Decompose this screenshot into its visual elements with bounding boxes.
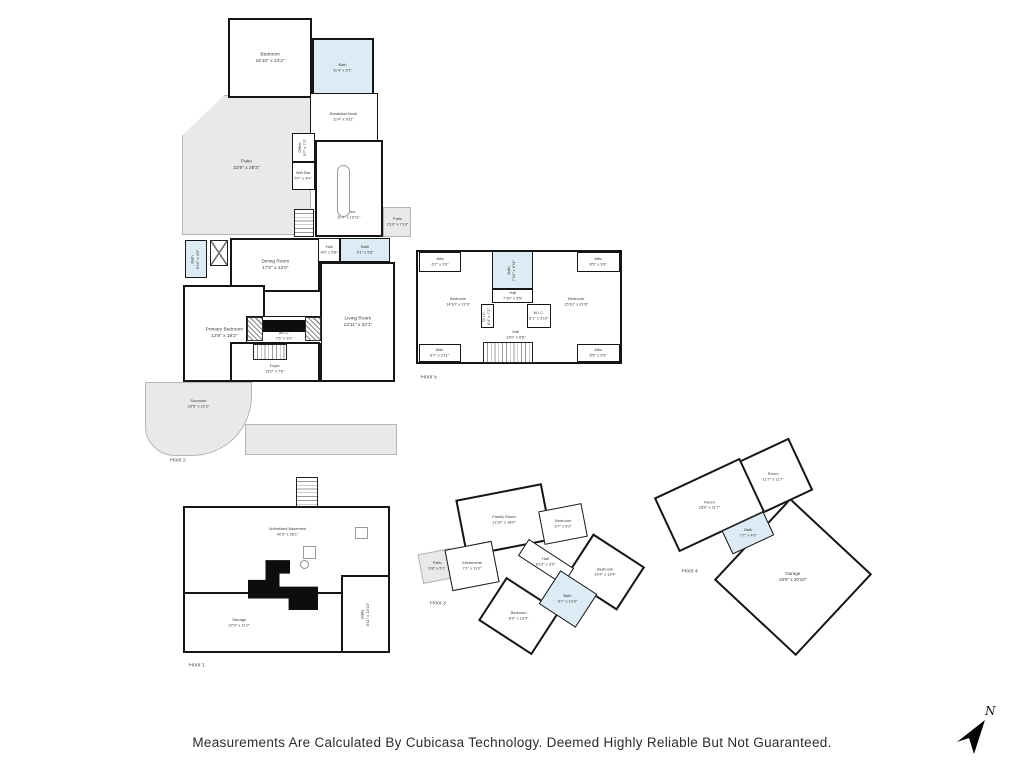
room-attic: Attic8'5" x 3'9" [577, 252, 620, 272]
support-post [355, 527, 368, 539]
floor-label: Floor 3 [430, 601, 446, 606]
floor-label: Floor 4 [682, 569, 698, 574]
room-hall: Hall4'6" x 5'8" [318, 238, 340, 262]
room-kitchenette: Kitchenette7'1" x 11'0" [444, 541, 499, 591]
room-label: Hall7'10" x 3'5" [503, 291, 523, 301]
floorplan-canvas: Patio22'8" x 29'3" Bedroom16'10" x 13'2"… [0, 0, 1024, 768]
room-label: Family Room11'10" x 18'0" [492, 515, 516, 525]
room-label: Hall8'10" x 3'0" [536, 557, 556, 567]
room-living: Living Room13'11" x 22'1" [320, 262, 395, 382]
room-label: Patio6'8" x 5'1" [428, 561, 445, 571]
room-breakfast-nook: Breakfast Nook11'4" x 9'11" [310, 93, 378, 141]
support-post [303, 546, 316, 559]
floor-label: Floor 5 [421, 375, 437, 380]
room-label: Living Room13'11" x 22'1" [343, 316, 372, 328]
room-label: Bath7'10" x 6'11" [508, 259, 518, 280]
room-label: Bath8'10" x 4'9" [191, 249, 201, 269]
room-bath-right: Bath9'1" x 5'8" [340, 238, 390, 262]
floor-label: Floor 2 [170, 458, 186, 463]
stairs [294, 209, 314, 237]
room-label: Patio22'8" x 29'3" [233, 159, 259, 171]
kitchen-island [337, 165, 350, 217]
room-bath: Bath7'10" x 6'11" [492, 251, 533, 289]
room-label: Hall4'6" x 5'8" [320, 245, 337, 255]
room-wic: W.I.C.7'6" x 3'2" [246, 316, 322, 344]
room-label: Garage20'8" x 20'10" [779, 571, 806, 582]
room-label: Bath6'7" x 10'3" [558, 594, 578, 604]
wall [341, 575, 389, 577]
room-label: Wet Bar5'7" x 4'0" [295, 171, 312, 181]
sunroom-walkway [245, 424, 397, 455]
wall [341, 575, 343, 652]
room-label: Bedroom10'4" x 13'4" [594, 567, 616, 577]
room-label-storage: Storage22'9" x 11'2" [206, 615, 272, 631]
room-label: Breakfast Nook11'4" x 9'11" [330, 112, 357, 122]
room-label: Bath11'4" x 9'1" [333, 63, 352, 73]
room-attic: Attic6'7" x 2'11" [419, 344, 461, 362]
room-label: Attic6'7" x 2'11" [430, 348, 449, 358]
room-bedroom-a: Bedroom6'7" x 6'2" [538, 503, 588, 545]
room-label: Bath9'1" x 5'8" [356, 245, 373, 255]
room-label: Dining Room17'2" x 12'0" [261, 259, 289, 271]
room-wic-left: W.I.C.6'4" x 7'1" [481, 304, 494, 328]
compass-n-label: N [984, 704, 996, 718]
room-label-utility: Utility8'11" x 13'10" [346, 594, 386, 634]
room-label: Kitchenette7'1" x 11'0" [462, 561, 482, 571]
room-label: Foyer13'0" x 7'6" [265, 364, 285, 374]
room-label: Bedroom16'10" x 13'2" [256, 52, 285, 64]
room-label-basement: Unfinished Basement40'3" x 28'1" [250, 524, 326, 540]
room-hall-upper: Hall7'10" x 3'5" [492, 289, 533, 303]
room-label-bedroom-left: Bedroom14'10" x 21'9" [430, 294, 486, 310]
room-label: Bedroom8'9" x 13'3" [509, 611, 529, 621]
room-wet-bar: Wet Bar5'7" x 4'0" [292, 162, 315, 190]
room-label: Room11'7" x 11'7" [762, 472, 783, 482]
room-attic: Attic6'7" x 3'9" [419, 252, 461, 272]
room-wic-right: W.I.C.6'1" x 3'10" [527, 304, 551, 328]
room-label: W.I.C.6'1" x 3'10" [529, 311, 549, 321]
room-patio-small: Patio2'10" x 7'10" [383, 207, 411, 237]
room-dining: Dining Room17'2" x 12'0" [230, 238, 320, 292]
room-label: Primary Bedroom12'8" x 19'2" [205, 328, 242, 340]
closet [210, 240, 228, 266]
room-label-hall-lower: Hall13'0" x 6'8" [494, 328, 538, 342]
stairs [483, 342, 533, 363]
disclaimer-text: Measurements Are Calculated By Cubicasa … [0, 735, 1024, 750]
room-bedroom: Bedroom16'10" x 13'2" [228, 18, 312, 98]
room-label: Office5'7" x 7'2" [299, 139, 309, 156]
room-bath-left: Bath8'10" x 4'9" [185, 240, 207, 278]
room-label: Sunroom23'9" x 22'2" [146, 397, 251, 412]
room-bath-top: Bath11'4" x 9'1" [312, 38, 374, 98]
room-label: Room18'0" x 11'7" [699, 500, 720, 510]
room-label: Bath7'7" x 4'6" [739, 528, 756, 538]
room-office: Office5'7" x 7'2" [292, 133, 315, 162]
room-label: Attic8'5" x 3'9" [590, 257, 607, 267]
room-sunroom: Sunroom23'9" x 22'2" [145, 382, 252, 456]
stairs [253, 344, 287, 360]
stairs [296, 477, 318, 508]
meter-symbol [300, 560, 309, 569]
room-label: Attic6'7" x 3'9" [431, 257, 448, 267]
compass-north-icon: N [948, 700, 1010, 767]
room-label: Patio2'10" x 7'10" [386, 217, 408, 227]
room-attic: Attic8'5" x 2'9" [577, 344, 620, 362]
room-label: Bedroom6'7" x 6'2" [554, 519, 571, 529]
room-label: W.I.C.6'4" x 7'1" [483, 307, 493, 324]
floor-label: Floor 1 [189, 663, 205, 668]
room-label: Attic8'5" x 2'9" [590, 348, 607, 358]
room-label-bedroom-right: Bedroom15'10" x 21'8" [548, 294, 604, 310]
